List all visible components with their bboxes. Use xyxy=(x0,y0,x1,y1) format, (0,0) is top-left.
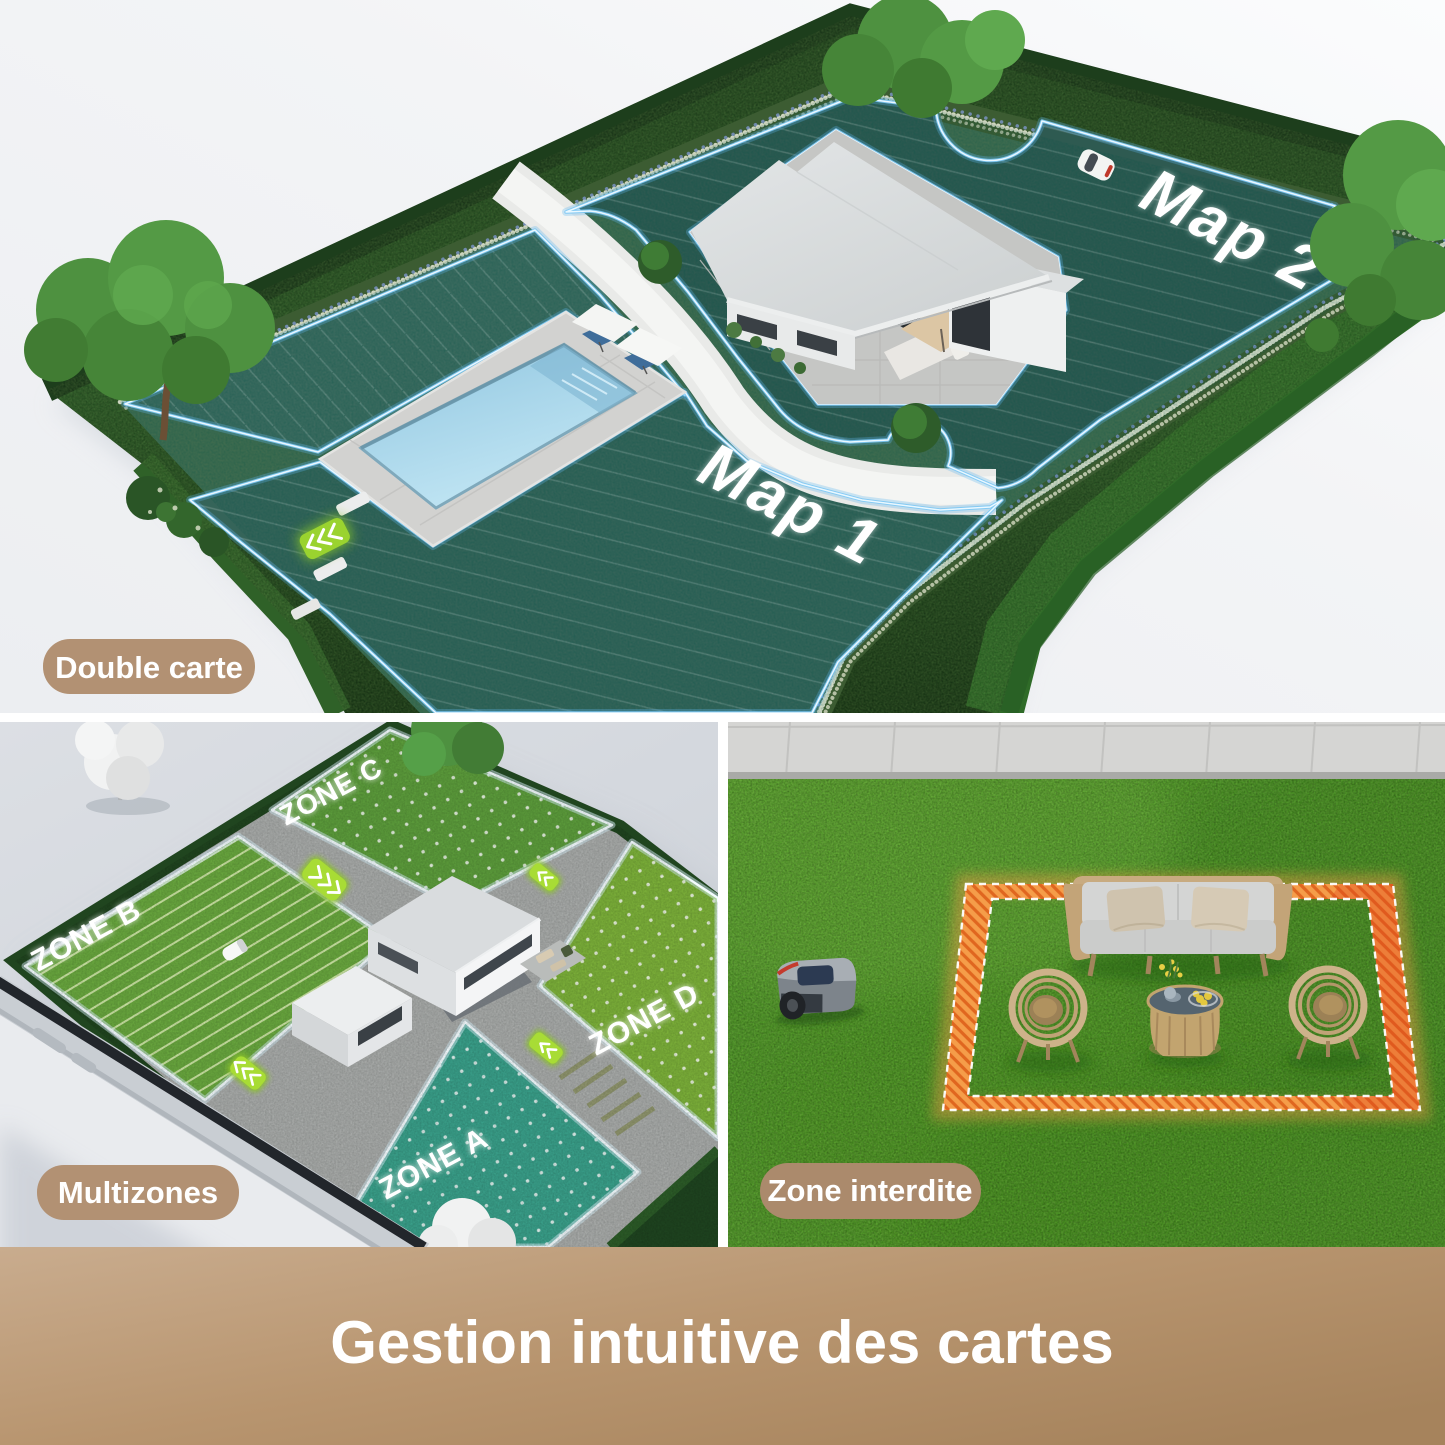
svg-text:Double carte: Double carte xyxy=(55,650,243,685)
svg-text:Multizones: Multizones xyxy=(58,1175,218,1210)
svg-text:Zone interdite: Zone interdite xyxy=(768,1173,973,1208)
svg-text:Gestion intuitive des cartes: Gestion intuitive des cartes xyxy=(330,1309,1114,1376)
